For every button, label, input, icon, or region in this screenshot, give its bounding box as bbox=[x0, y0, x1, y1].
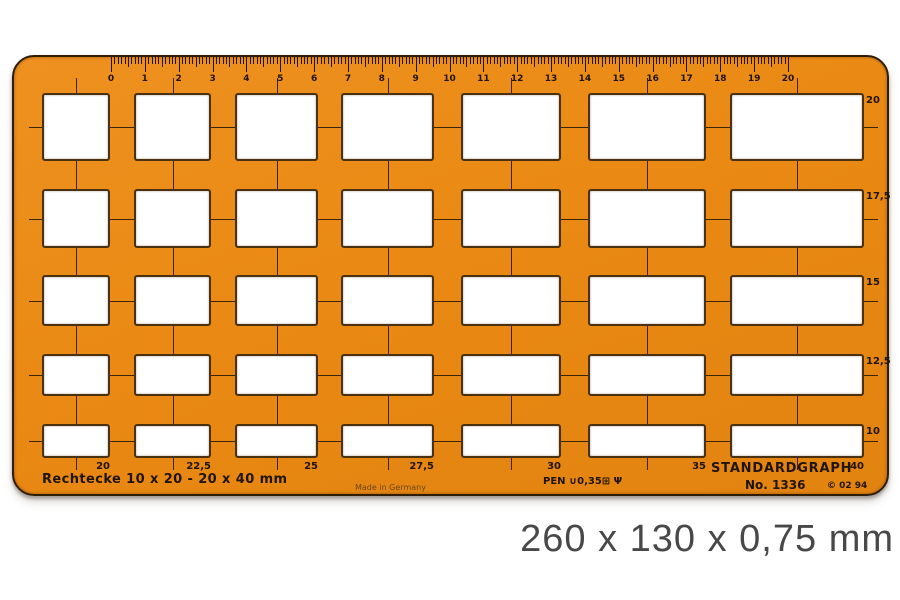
column-width-label: 25 bbox=[304, 461, 318, 472]
product-photo-stage: 01234567891011121314151617181920 2017,51… bbox=[0, 0, 900, 600]
row-height-label: 20 bbox=[866, 95, 880, 106]
row-height-label: 15 bbox=[866, 277, 880, 288]
stencil-template: 01234567891011121314151617181920 2017,51… bbox=[12, 55, 889, 496]
model-number: No. 1336 bbox=[745, 478, 805, 492]
column-width-label: 35 bbox=[692, 461, 706, 472]
template-name-label: Rechtecke 10 x 20 - 20 x 40 mm bbox=[42, 472, 287, 487]
made-in-germany-label: Made in Germany bbox=[355, 483, 426, 492]
column-width-label: 22,5 bbox=[186, 461, 211, 472]
row-height-label: 17,5 bbox=[866, 191, 891, 202]
copyright-mark: © 02 94 bbox=[827, 481, 867, 491]
size-labels: 2017,51512,5102022,52527,5303540 bbox=[14, 57, 887, 494]
row-height-label: 10 bbox=[866, 426, 880, 437]
dimensions-caption: 260 x 130 x 0,75 mm bbox=[520, 518, 894, 561]
column-width-label: 20 bbox=[96, 461, 110, 472]
pen-size-marking: PEN ∪0,35⊞ Ψ bbox=[543, 476, 622, 487]
column-width-label: 30 bbox=[547, 461, 561, 472]
column-width-label: 27,5 bbox=[409, 461, 434, 472]
brand-name: STANDARDGRAPH bbox=[711, 461, 852, 476]
row-height-label: 12,5 bbox=[866, 356, 891, 367]
